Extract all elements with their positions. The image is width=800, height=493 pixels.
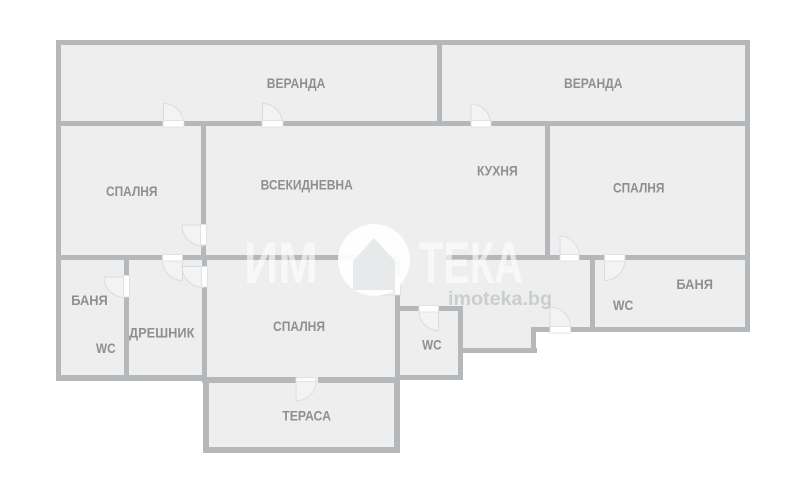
svg-text:ИМ: ИМ (244, 231, 318, 296)
svg-text:СПАЛНЯ: СПАЛНЯ (273, 318, 325, 334)
svg-text:СПАЛНЯ: СПАЛНЯ (106, 183, 158, 199)
svg-text:КУХНЯ: КУХНЯ (477, 163, 518, 179)
svg-text:WC: WC (422, 336, 441, 352)
svg-text:ВЕРАНДА: ВЕРАНДА (267, 75, 326, 91)
svg-text:ТЕРАСА: ТЕРАСА (282, 408, 331, 424)
svg-text:БАНЯ: БАНЯ (676, 276, 713, 292)
svg-text:ДРЕШНИК: ДРЕШНИК (129, 325, 195, 341)
svg-text:ВСЕКИДНЕВНА: ВСЕКИДНЕВНА (261, 176, 353, 192)
svg-text:ВЕРАНДА: ВЕРАНДА (564, 75, 623, 91)
svg-text:WC: WC (96, 340, 116, 356)
svg-text:WC: WC (613, 297, 633, 313)
svg-text:СПАЛНЯ: СПАЛНЯ (613, 179, 665, 195)
svg-text:imoteka.bg: imoteka.bg (448, 289, 552, 310)
svg-text:БАНЯ: БАНЯ (71, 292, 108, 308)
svg-text:ТЕКА: ТЕКА (419, 231, 523, 296)
